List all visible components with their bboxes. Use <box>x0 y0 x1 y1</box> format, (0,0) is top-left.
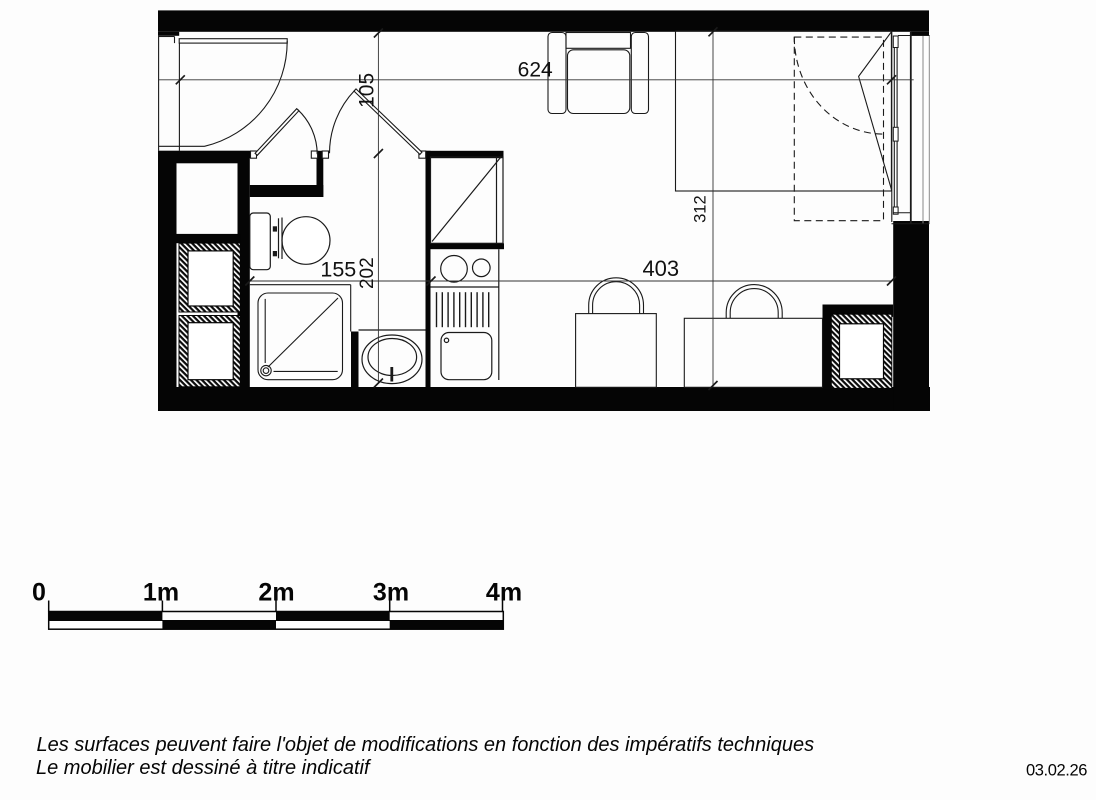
svg-text:Les surfaces peuvent faire l'o: Les surfaces peuvent faire l'objet de mo… <box>37 734 815 756</box>
svg-text:1m: 1m <box>143 579 179 607</box>
svg-text:312: 312 <box>692 195 710 223</box>
svg-text:Le mobilier est dessiné à titr: Le mobilier est dessiné à titre indicati… <box>36 757 372 779</box>
svg-text:155: 155 <box>320 258 356 282</box>
svg-text:2m: 2m <box>258 579 294 607</box>
svg-text:03.02.26: 03.02.26 <box>1026 762 1087 780</box>
svg-text:624: 624 <box>518 58 553 81</box>
svg-text:0: 0 <box>32 579 46 607</box>
svg-text:3m: 3m <box>373 579 409 607</box>
svg-text:202: 202 <box>357 257 378 289</box>
svg-text:403: 403 <box>642 256 679 281</box>
svg-text:105: 105 <box>356 73 379 108</box>
svg-text:4m: 4m <box>486 579 522 607</box>
